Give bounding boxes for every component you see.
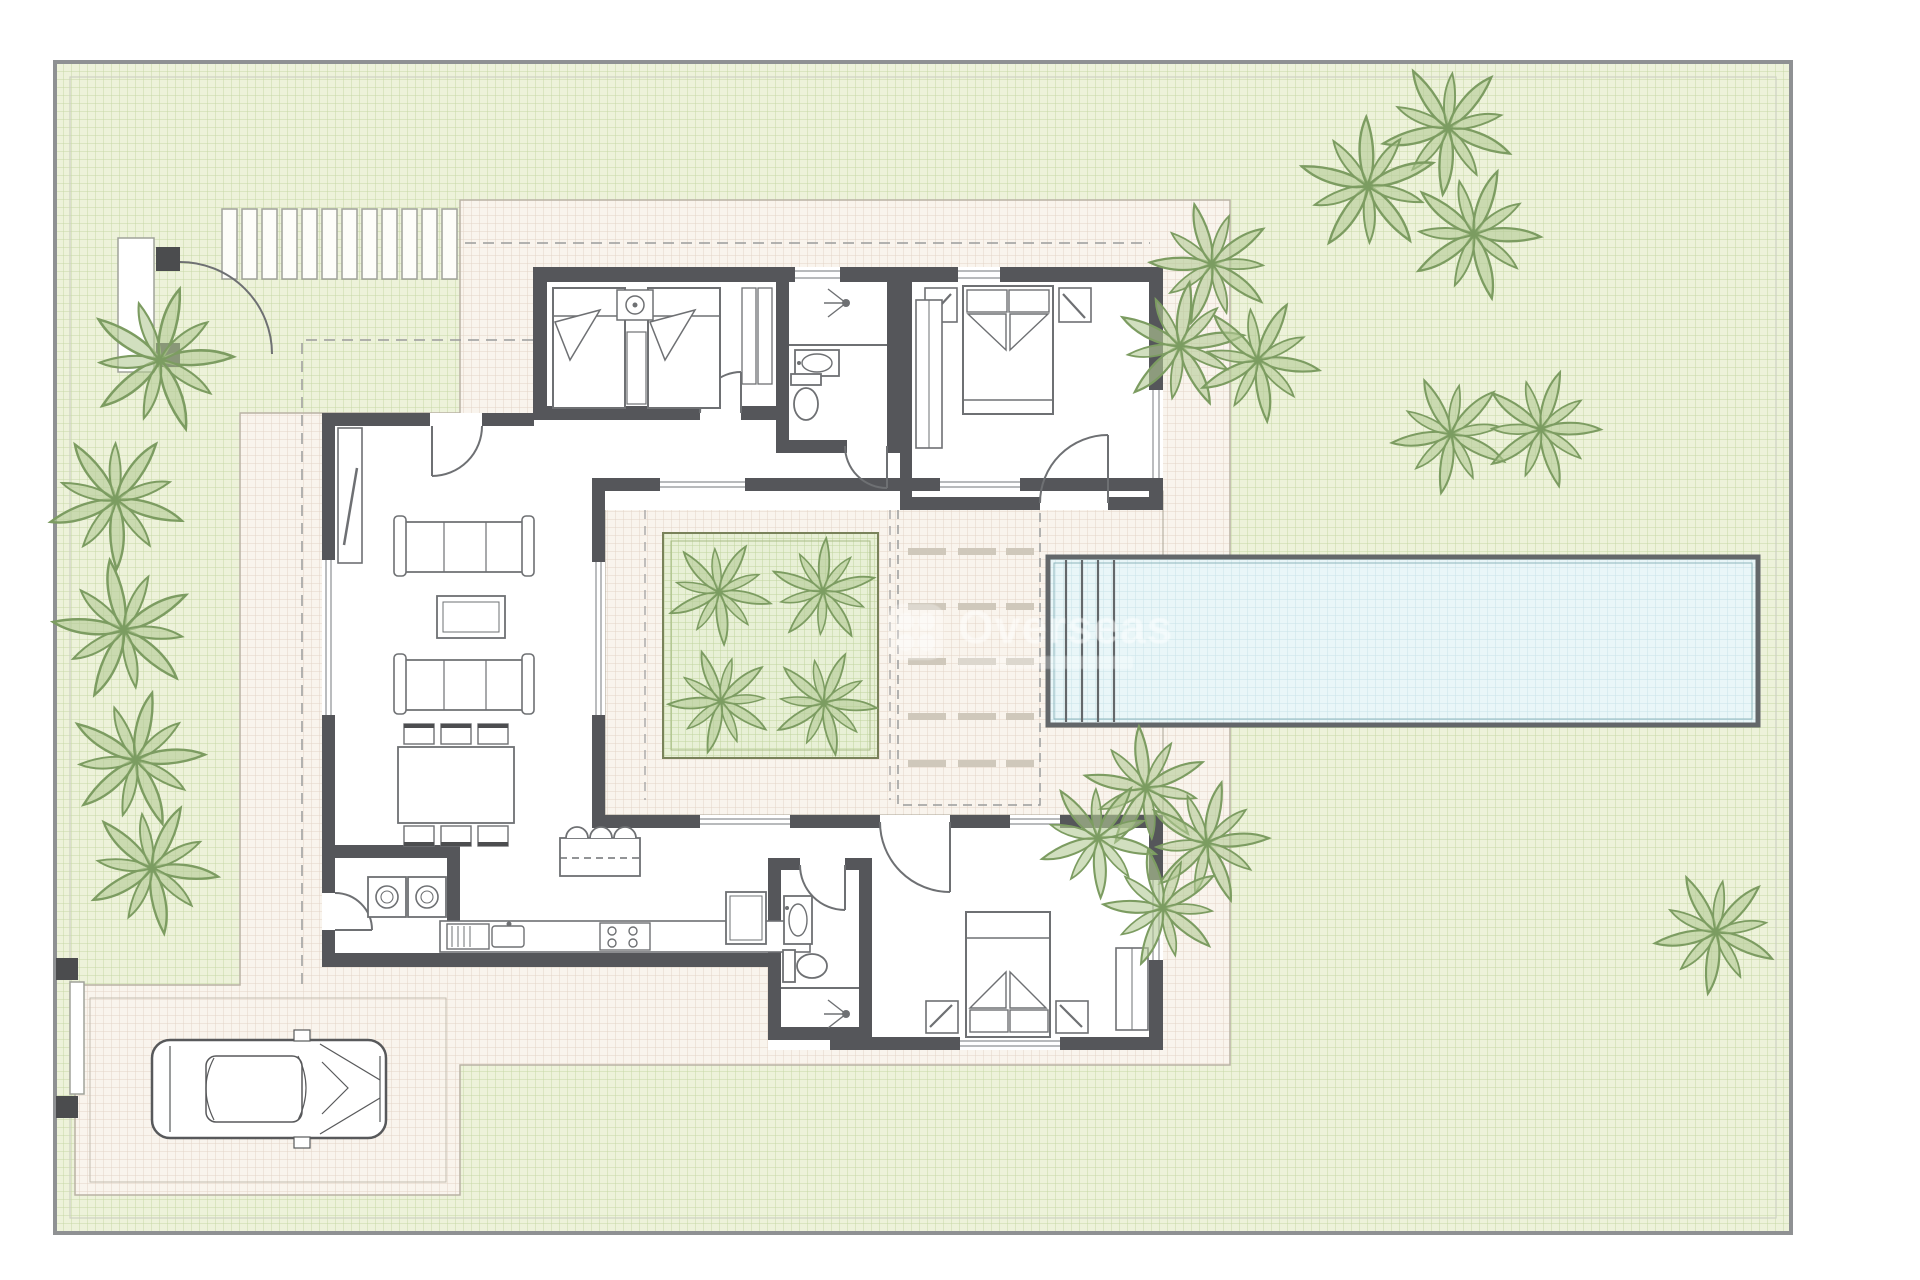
floor-plan-svg	[0, 0, 1920, 1280]
sofa-armrest	[394, 654, 406, 714]
dining-table	[398, 747, 514, 823]
wall	[482, 413, 534, 426]
wall	[322, 953, 781, 967]
window	[795, 267, 840, 282]
window	[322, 560, 335, 715]
sofa-armrest	[522, 654, 534, 714]
stepping-stone	[302, 209, 317, 279]
car-mirror	[294, 1137, 310, 1148]
wall	[789, 440, 847, 453]
sofa	[402, 522, 528, 572]
pergola-slat	[1006, 548, 1034, 555]
wall	[322, 715, 335, 893]
stepping-stone	[262, 209, 277, 279]
wall	[900, 281, 912, 497]
pergola-slat	[908, 713, 946, 720]
wall	[845, 858, 872, 870]
pergola-slat	[908, 658, 946, 665]
wall	[790, 815, 880, 828]
nightstand	[1059, 288, 1091, 322]
stepping-stone	[402, 209, 417, 279]
pillow	[967, 290, 1007, 312]
wall	[950, 815, 1010, 828]
gate-post	[56, 1096, 78, 1118]
wall	[335, 413, 430, 426]
wardrobe	[742, 288, 756, 384]
single-bed	[553, 288, 625, 408]
pergola-slat	[958, 760, 996, 767]
toilet-bowl	[794, 388, 818, 420]
stepping-stone	[362, 209, 377, 279]
pergola-slat	[908, 548, 946, 555]
stepping-stone	[382, 209, 397, 279]
toilet-tank	[783, 950, 795, 982]
wall	[533, 267, 1163, 282]
wall	[887, 281, 900, 453]
pool	[1048, 557, 1758, 725]
wall	[776, 281, 789, 453]
gate-post	[56, 958, 78, 980]
sofa	[402, 660, 528, 710]
pillow	[1010, 1010, 1048, 1032]
stepping-stone	[222, 209, 237, 279]
sink-tap	[797, 361, 801, 365]
sofa-armrest	[394, 516, 406, 576]
single-bed	[648, 288, 720, 408]
pergola-slat	[1006, 658, 1034, 665]
window	[660, 478, 745, 491]
window	[700, 815, 790, 828]
wall	[592, 715, 605, 815]
sofa-armrest	[522, 516, 534, 576]
sink-tap	[785, 906, 789, 910]
pergola-slat	[958, 713, 996, 720]
car-mirror	[294, 1030, 310, 1041]
stepping-stone	[282, 209, 297, 279]
car-cabin	[206, 1056, 302, 1122]
wall	[768, 1027, 872, 1040]
pergola-slat	[1006, 603, 1034, 610]
window	[592, 562, 605, 715]
stepping-stone	[422, 209, 437, 279]
wall	[745, 478, 940, 491]
pergola-slat	[908, 760, 946, 767]
stepping-stone	[342, 209, 357, 279]
stepping-stone	[322, 209, 337, 279]
wall	[859, 858, 872, 1040]
pillow	[970, 1010, 1008, 1032]
wall	[322, 413, 335, 560]
pergola-slat	[908, 603, 946, 610]
floor-plan-page: Overseas	[0, 0, 1920, 1280]
driveway-gate-panel	[70, 982, 84, 1094]
wall	[900, 497, 1040, 510]
stepping-stone	[242, 209, 257, 279]
sink-drainer	[447, 924, 489, 949]
pergola-slat	[958, 548, 996, 555]
toilet-bowl	[797, 954, 827, 978]
wall	[1060, 1037, 1163, 1050]
wall	[1149, 960, 1163, 1050]
stepping-stone	[442, 209, 457, 279]
lamp-dot	[633, 303, 638, 308]
kitchen-sink	[492, 926, 524, 947]
wall	[741, 406, 776, 420]
sink-tap	[507, 922, 512, 927]
hob	[600, 923, 650, 950]
sink	[784, 896, 812, 944]
washing-machine	[368, 877, 406, 917]
wall	[447, 858, 460, 928]
nightstand	[926, 1001, 958, 1033]
window	[960, 1037, 1060, 1050]
pergola-slat	[1006, 713, 1034, 720]
window	[1149, 390, 1163, 478]
bedside-runner	[627, 332, 646, 404]
pergola-slat	[958, 603, 996, 610]
wall	[335, 845, 460, 858]
tv-cabinet	[338, 428, 362, 563]
pergola-slat	[958, 658, 996, 665]
window	[940, 478, 1020, 491]
window	[958, 267, 1000, 282]
wall	[592, 815, 700, 828]
wall	[768, 858, 800, 870]
wall	[592, 478, 605, 562]
washing-machine	[408, 877, 446, 917]
fridge	[726, 892, 766, 944]
toilet-tank	[791, 374, 821, 385]
wall	[533, 267, 547, 420]
kitchen-island	[560, 838, 640, 876]
pergola-slat	[1006, 760, 1034, 767]
pillow	[1009, 290, 1049, 312]
wardrobe	[758, 288, 772, 384]
gate-post	[156, 247, 180, 271]
